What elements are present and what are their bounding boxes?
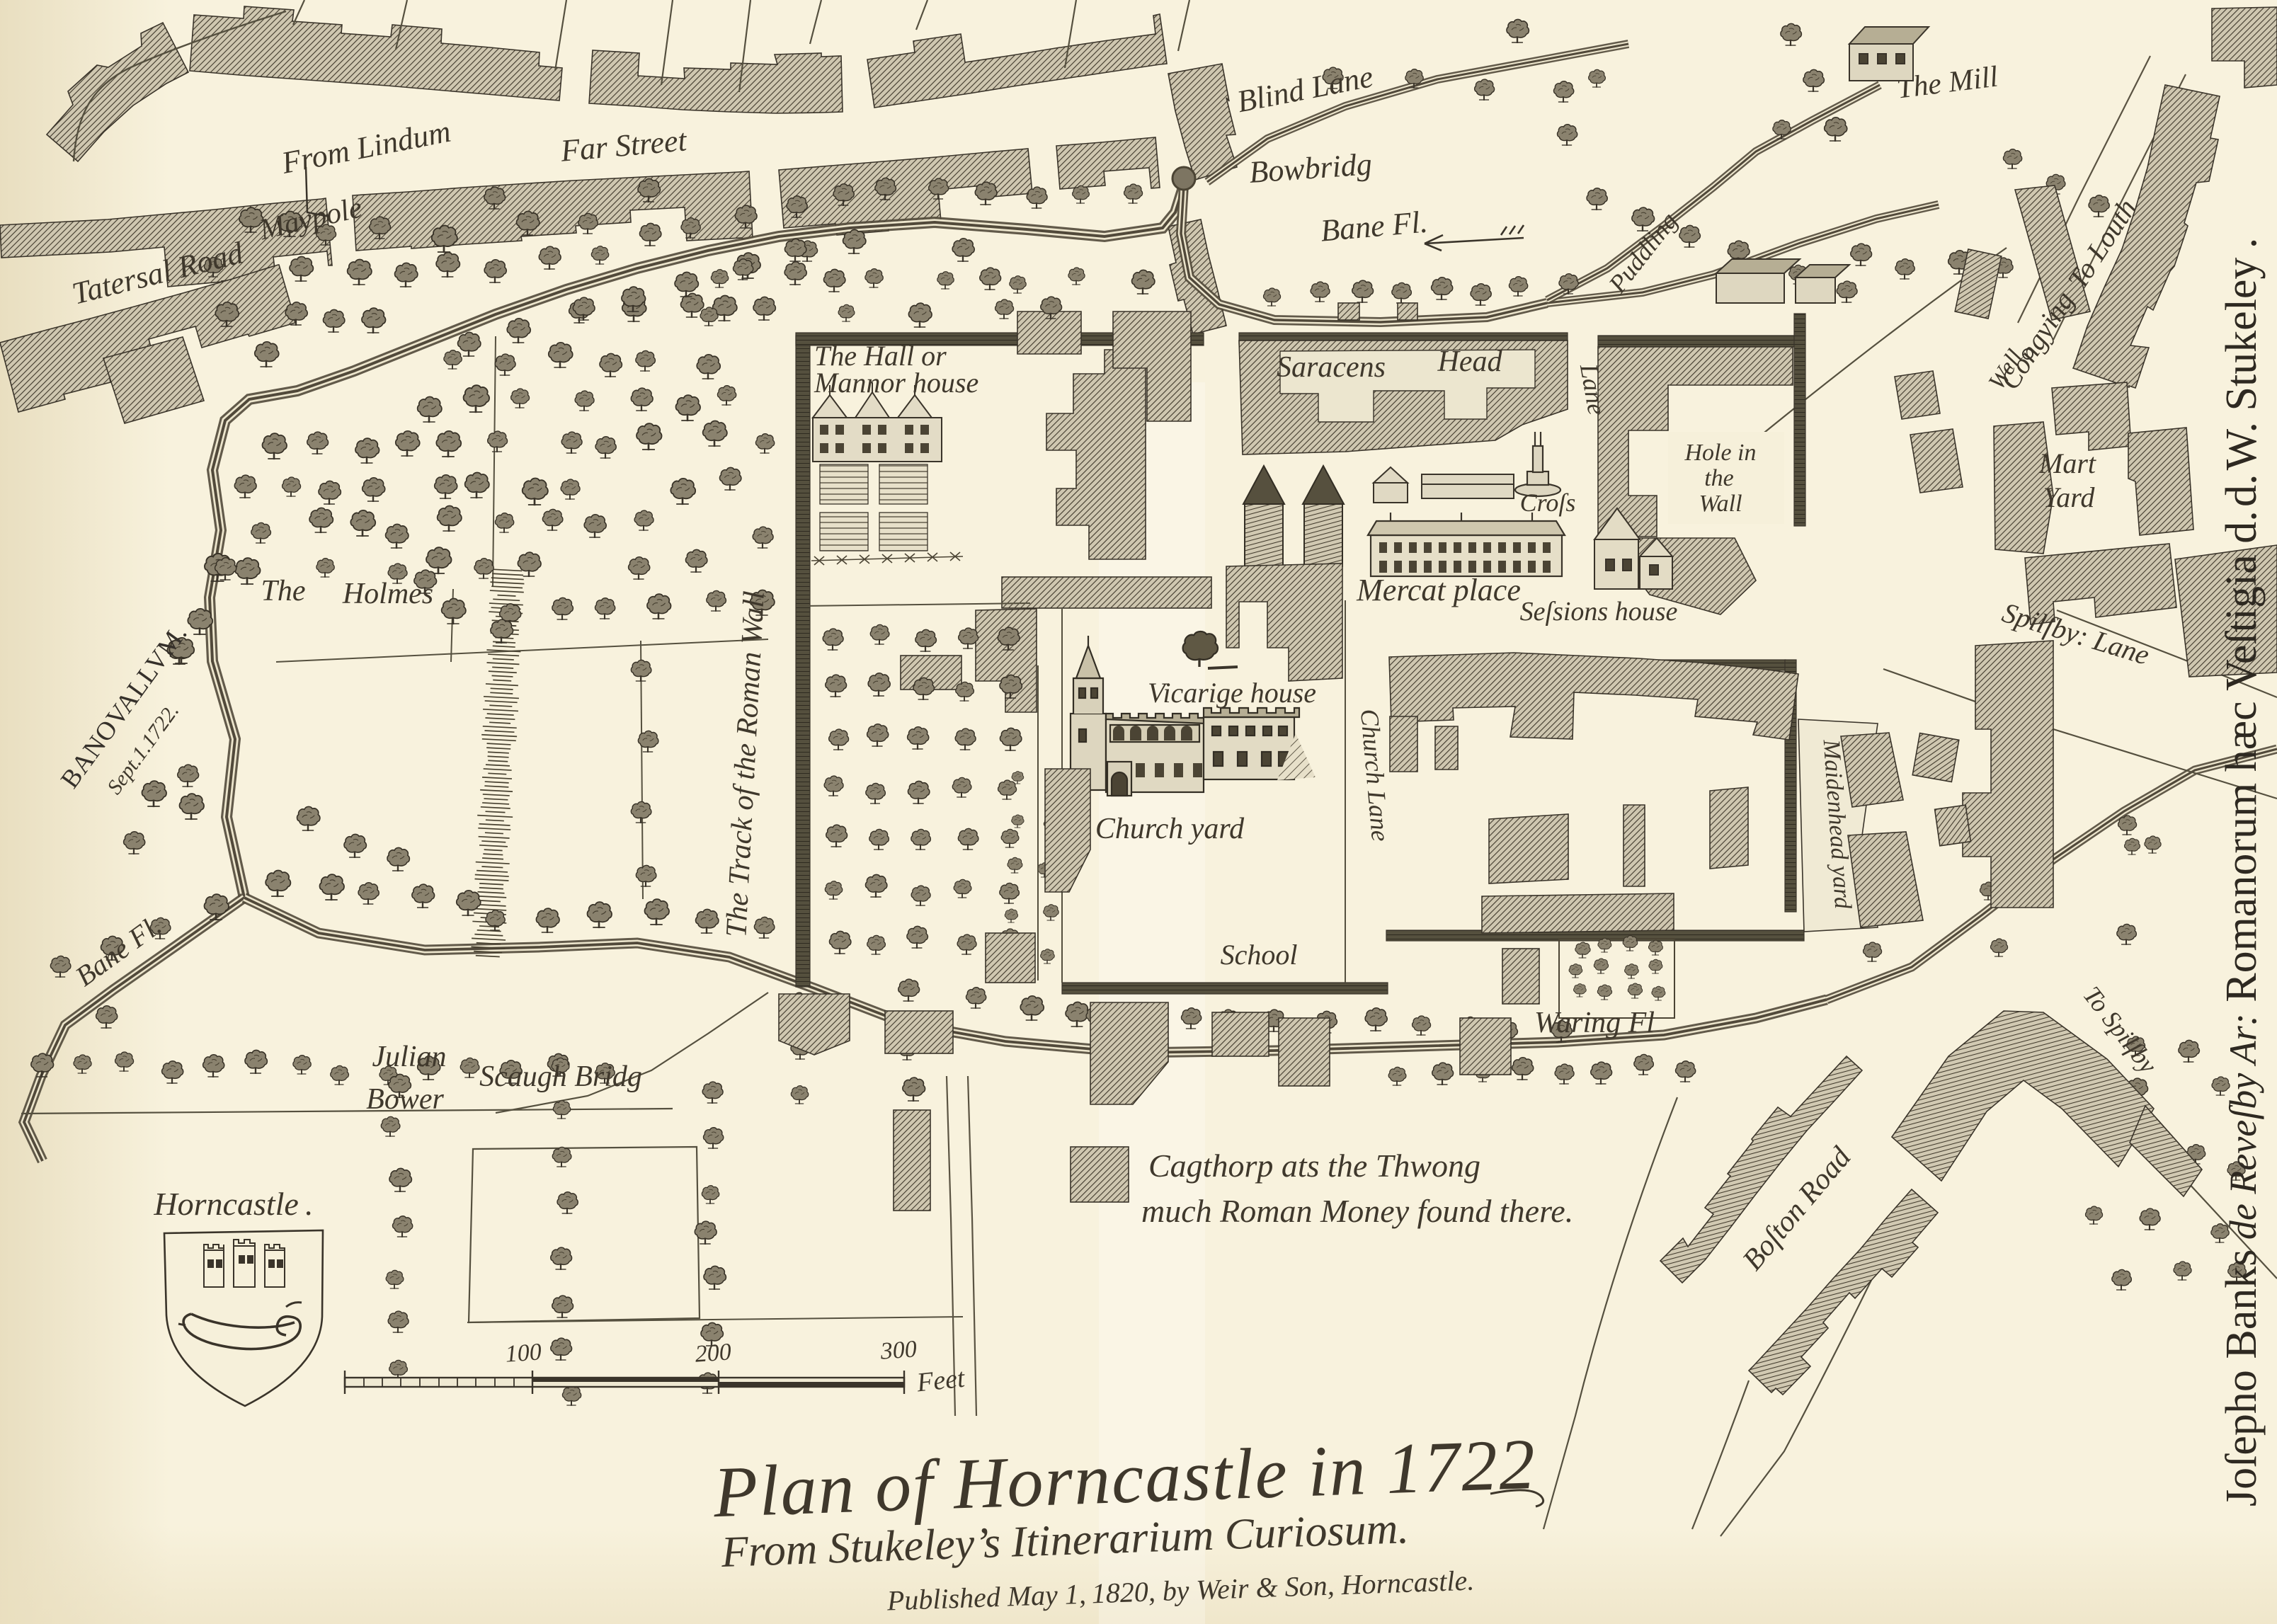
svg-text:Mannor house: Mannor house: [814, 367, 978, 399]
svg-text:300: 300: [879, 1336, 918, 1365]
svg-text:Head: Head: [1437, 345, 1503, 378]
svg-text:200: 200: [695, 1339, 732, 1367]
svg-text:School: School: [1221, 939, 1298, 971]
svg-text:Yard: Yard: [2043, 481, 2096, 513]
svg-text:Julian: Julian: [372, 1041, 447, 1073]
svg-text:Hole in: Hole in: [1684, 440, 1756, 466]
svg-text:Croſs: Croſs: [1520, 488, 1576, 517]
svg-text:The: The: [261, 575, 306, 607]
svg-text:Holmes: Holmes: [342, 578, 433, 610]
svg-text:Waring Fl: Waring Fl: [1534, 1007, 1655, 1039]
svg-text:Feet: Feet: [915, 1363, 967, 1398]
svg-text:Joſepho Banks de Reveſby Ar: R: Joſepho Banks de Reveſby Ar: Romanorum h…: [2218, 238, 2266, 1506]
svg-text:100: 100: [505, 1339, 542, 1367]
svg-text:Seſsions house: Seſsions house: [1520, 597, 1678, 627]
svg-text:Mercat place: Mercat place: [1356, 573, 1521, 607]
svg-text:Scaugh Bridg: Scaugh Bridg: [479, 1060, 642, 1093]
svg-text:Wall: Wall: [1699, 491, 1742, 517]
svg-text:Vicarige house: Vicarige house: [1148, 677, 1316, 709]
svg-text:much Roman Money found there.: much Roman Money found there.: [1141, 1193, 1573, 1229]
svg-text:Mart: Mart: [2038, 447, 2096, 479]
svg-text:the: the: [1704, 465, 1734, 491]
svg-text:Saracens: Saracens: [1277, 351, 1386, 384]
svg-text:Cagthorp ats the Thwong: Cagthorp ats the Thwong: [1148, 1148, 1480, 1184]
svg-text:Church yard: Church yard: [1095, 813, 1245, 845]
svg-text:Bower: Bower: [366, 1083, 444, 1116]
svg-text:Horncastle .: Horncastle .: [153, 1186, 313, 1222]
